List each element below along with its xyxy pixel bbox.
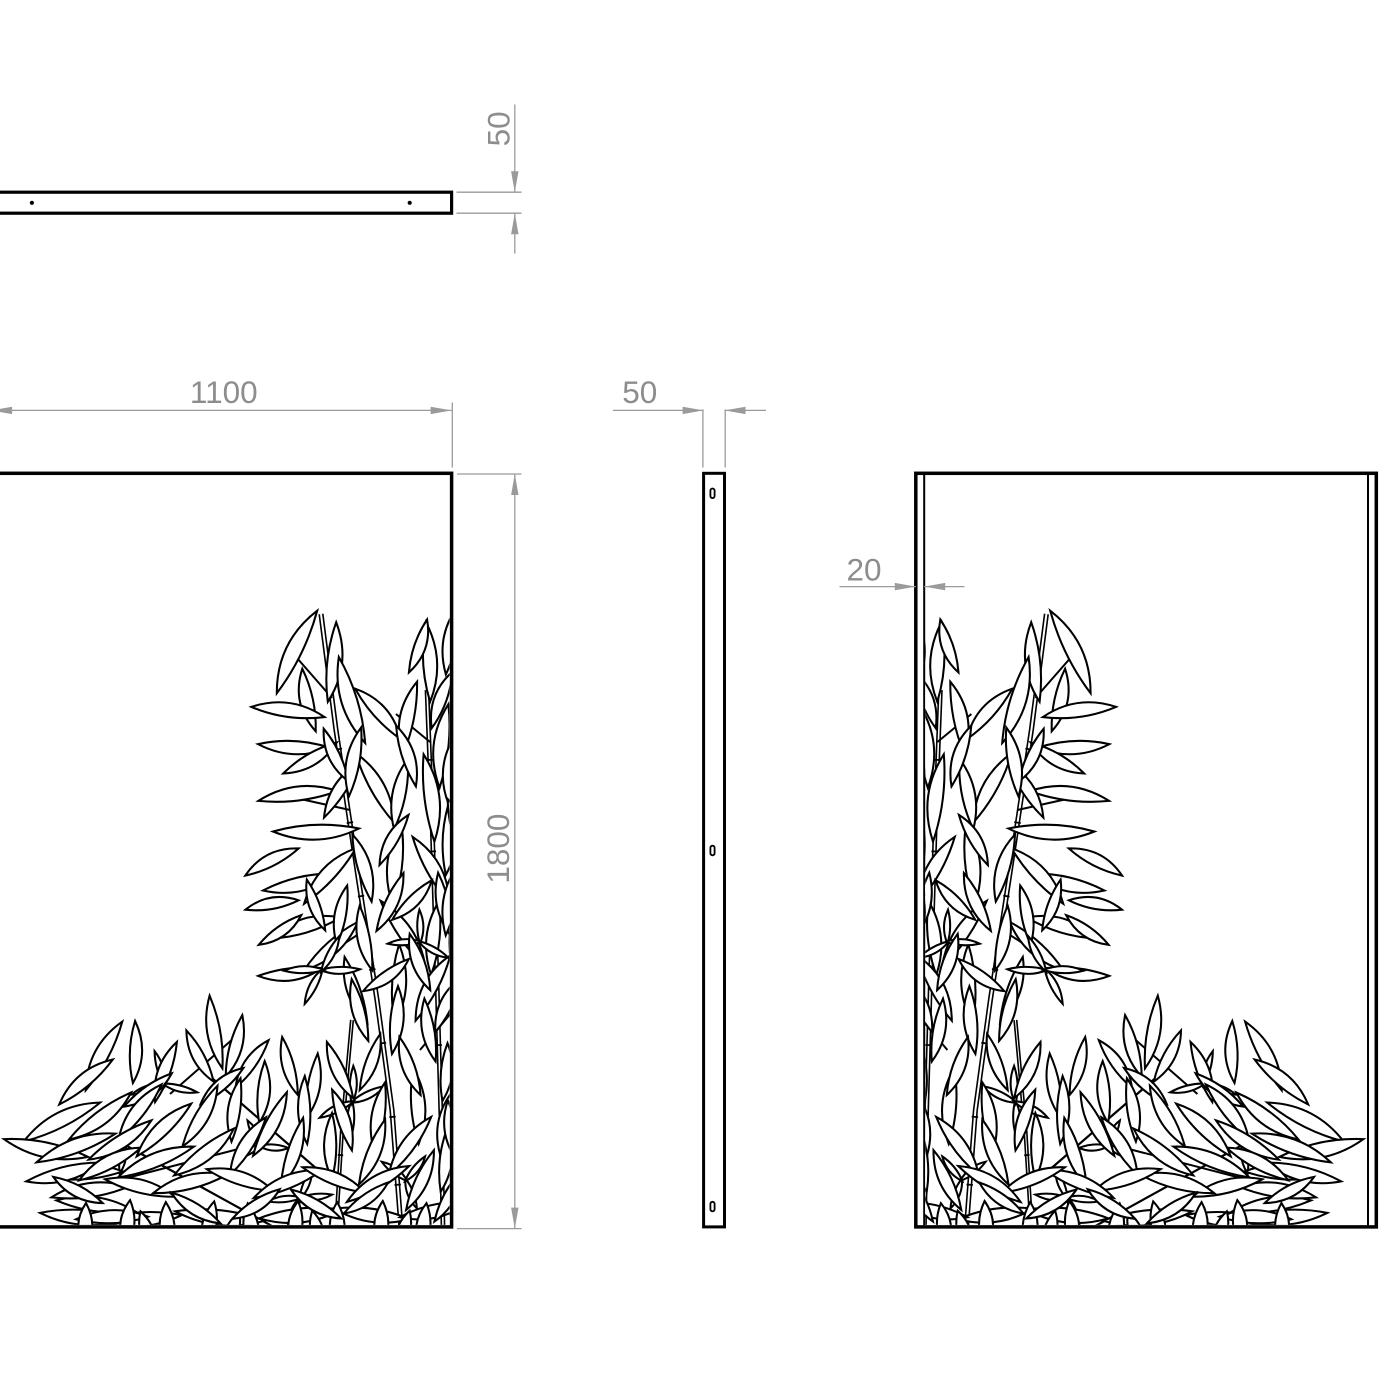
- svg-text:1100: 1100: [190, 374, 258, 410]
- svg-text:50: 50: [481, 111, 517, 146]
- svg-text:50: 50: [622, 374, 657, 410]
- svg-text:1800: 1800: [480, 814, 516, 884]
- svg-text:20: 20: [846, 552, 881, 588]
